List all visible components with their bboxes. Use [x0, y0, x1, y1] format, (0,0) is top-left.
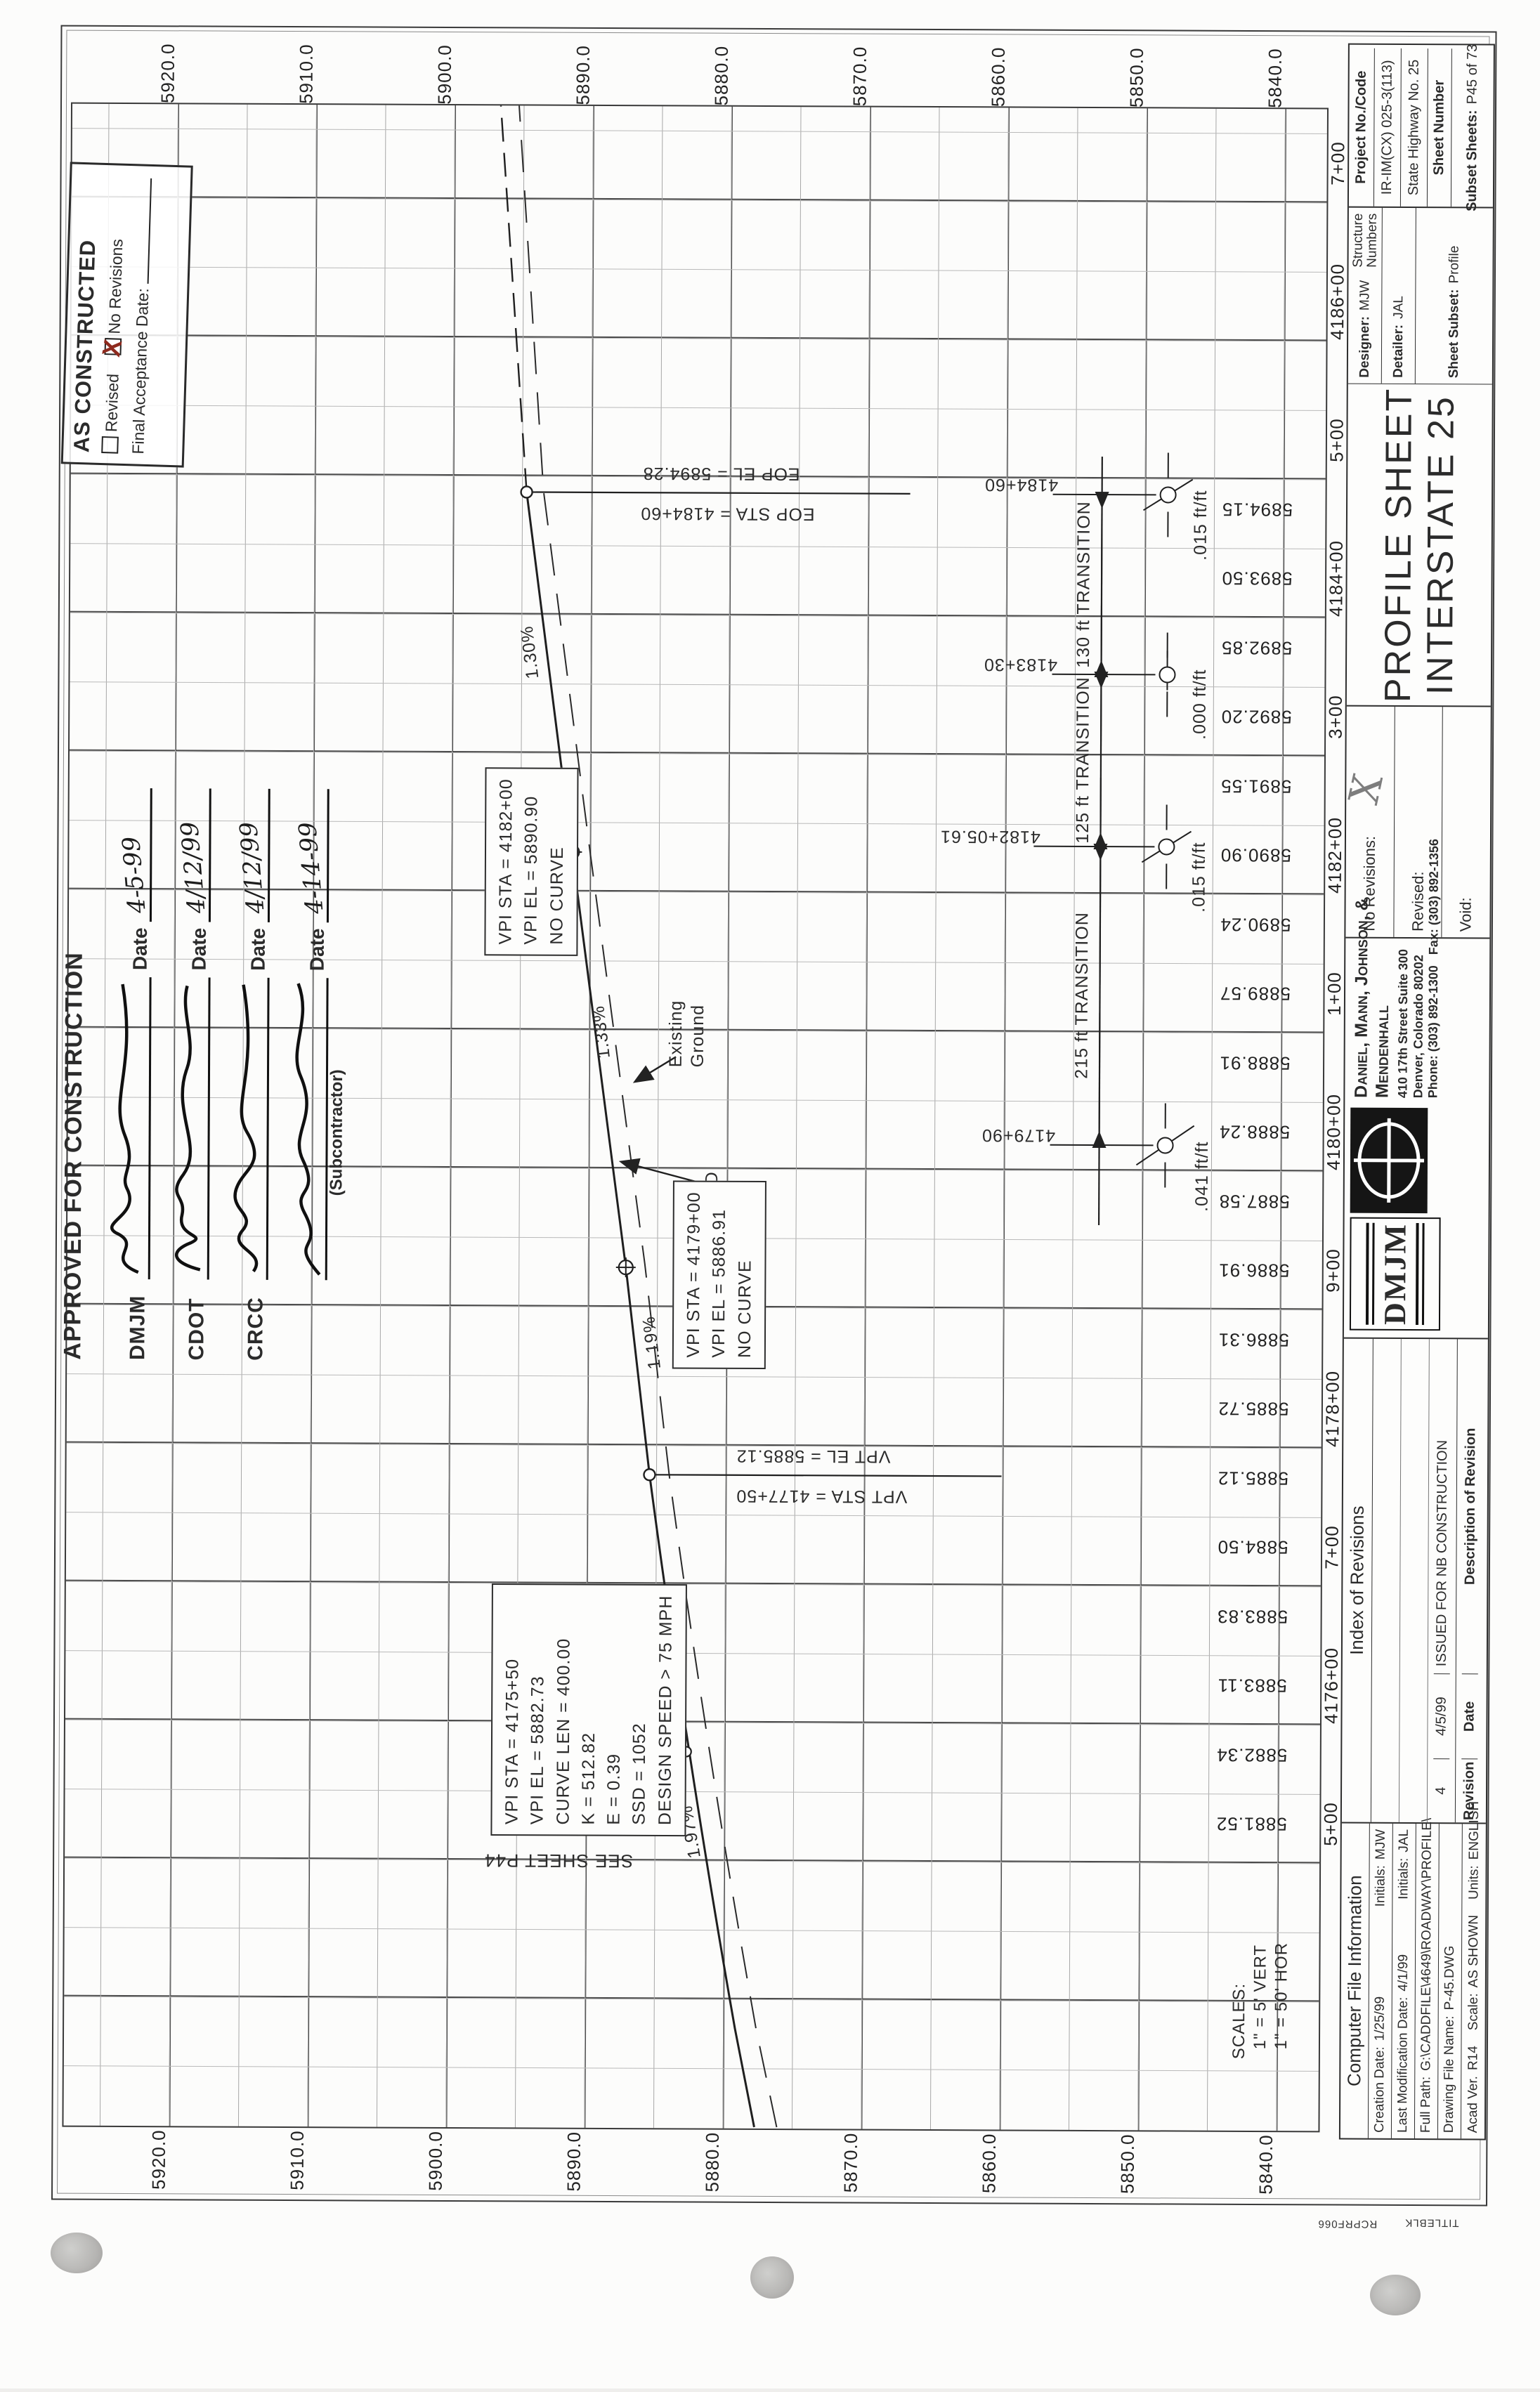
- structure-label-1: Structure: [1350, 214, 1365, 268]
- drawing-file-label: Drawing File Name:: [1442, 2015, 1458, 2133]
- eop-elevation-label: EOP EL = 5894.28: [643, 462, 800, 485]
- transition-sta-4184-60: 4184+60: [984, 473, 1058, 496]
- vpi-4179-curve: NO CURVE: [731, 1192, 757, 1358]
- no-revisions-label: No Revisions: [105, 239, 126, 334]
- sheet-title-section: PROFILE SHEET INTERSTATE 25 Designer: MJ…: [1347, 207, 1493, 706]
- ior-header-row: Revision Date Description of Revision: [1456, 1339, 1484, 1822]
- rate-015-b: .015 ft/ft: [1188, 842, 1211, 912]
- existing-ground-callout: Existing Ground: [665, 1000, 710, 1068]
- sheet-number-label: Sheet Number: [1428, 48, 1452, 207]
- last-mod-value: 4/1/99: [1396, 1954, 1411, 1992]
- structure-numbers-cell: Structure Numbers: [1351, 214, 1379, 268]
- subcontractor-signature-line: (Subcontractor): [280, 978, 329, 1280]
- company-phone: Phone: (303) 892-1300: [1426, 965, 1441, 1098]
- revised-option: Revised: [101, 374, 122, 454]
- vpi-4182-el: VPI EL = 5890.90: [518, 778, 544, 944]
- units-label: Units:: [1466, 1865, 1482, 1900]
- cdot-signature-line: [162, 977, 211, 1279]
- last-mod-label: Last Modification Date:: [1395, 1997, 1411, 2133]
- signature-row-crcc: CRCC Date 4/12/99: [209, 447, 272, 1361]
- date-line: 4-5-99: [115, 788, 152, 922]
- state-highway-value: State Highway No. 25: [1401, 48, 1428, 207]
- sheet-subset-label: Sheet Subset:: [1446, 289, 1462, 378]
- cdot-label: CDOT: [185, 1286, 209, 1360]
- date-word: Date: [129, 927, 152, 970]
- initials-label: Initials:: [1373, 1865, 1388, 1907]
- index-of-revisions: Index of Revisions 4 4/5/99 ISSUED FOR N…: [1342, 1338, 1488, 1823]
- mod-initials-value: JAL: [1397, 1829, 1412, 1852]
- no-revisions-option: X No Revisions: [104, 239, 126, 356]
- drawing-sheet: 5920.05910.05900.05890.05880.05870.05860…: [0, 0, 1540, 2392]
- date-line: 4-14-99: [292, 789, 329, 922]
- ior-empty-row: [1371, 1339, 1402, 1822]
- scale-value: AS SHOWN: [1466, 1915, 1481, 1988]
- see-sheet-note: SEE SHEET P44: [484, 1849, 633, 1872]
- curve-ssd: SSD = 1052: [627, 1595, 653, 1825]
- detailer-value: JAL: [1391, 296, 1407, 319]
- dmjm-globe-icon: [1350, 1108, 1428, 1213]
- signature-scribble: [221, 978, 268, 1280]
- handwritten-date: 4-5-99: [117, 835, 152, 914]
- final-acceptance-label: Final Acceptance Date:: [129, 288, 152, 455]
- revision-status-box: No Revisions: X Revised: Void:: [1345, 705, 1490, 938]
- logo-bars: [1366, 1223, 1375, 1325]
- scanned-profile-sheet-page: { "grid": { "elevation_labels": ["5920.0…: [0, 0, 1540, 2388]
- ior-revision-row: 4 4/5/99 ISSUED FOR NB CONSTRUCTION: [1428, 1339, 1458, 1822]
- revised-cell-label: Revised:: [1409, 871, 1427, 932]
- rate-041: .041 ft/ft: [1192, 1141, 1214, 1211]
- designer-label: Designer:: [1357, 316, 1372, 378]
- no-revisions-cell-label: No Revisions:: [1360, 836, 1379, 932]
- transition-sta-4182-05: 4182+05.61: [940, 825, 1040, 847]
- finished-grade-extension-dashed: [500, 105, 528, 492]
- scale-label: Scale:: [1466, 1993, 1481, 2030]
- void-cell-label: Void:: [1457, 897, 1475, 932]
- handwritten-date: 4/12/99: [176, 821, 211, 915]
- crcc-label: CRCC: [244, 1287, 268, 1361]
- revised-label: Revised: [102, 374, 122, 433]
- transition-span-125: 125 ft TRANSITION: [1072, 677, 1095, 844]
- ior-title: Index of Revisions: [1342, 1339, 1373, 1822]
- curve-len: CURVE LEN = 400.00: [550, 1595, 577, 1825]
- logo-bars: [1416, 1223, 1425, 1325]
- date-header: Date: [1461, 1673, 1478, 1758]
- signature-row-dmjm: DMJM Date 4-5-99: [91, 447, 154, 1360]
- full-path-value: G:\CADDFILE\4649\ROADWAY\PROFILE\: [1418, 1818, 1435, 2071]
- project-code-value: IR-IM(CX) 025-3(113): [1374, 48, 1402, 207]
- signature-scribble: [103, 977, 150, 1279]
- vpi-4182-box: VPI STA = 4182+00 VPI EL = 5890.90 NO CU…: [484, 767, 578, 956]
- date-line: 4/12/99: [174, 789, 211, 922]
- date-word: Date: [188, 928, 211, 971]
- revision-header: Revision: [1461, 1758, 1477, 1822]
- as-constructed-title: AS CONSTRUCTED: [69, 174, 103, 453]
- signature-row-subcontractor: (Subcontractor) Date 4-14-99: [268, 447, 331, 1361]
- revision-description: ISSUED FOR NB CONSTRUCTION: [1434, 1339, 1451, 1673]
- subset-sheets-value: P45 of 73: [1465, 44, 1481, 105]
- subset-sheets-label: Subset Sheets:: [1464, 110, 1481, 211]
- sheet-subset-value: Profile: [1447, 246, 1462, 284]
- description-header: Description of Revision: [1461, 1339, 1479, 1673]
- punch-hole: [750, 2256, 794, 2299]
- signature-scribble: [162, 977, 209, 1279]
- acad-ver-label: Acad Ver.: [1465, 2076, 1480, 2133]
- vpi-4179-el: VPI EL = 5886.91: [706, 1192, 732, 1358]
- superelevation-diagram: [1032, 452, 1197, 1226]
- corner-text-titleblk: TITLEBLK: [1404, 2216, 1459, 2228]
- dmjm-logo: DMJM: [1350, 1108, 1441, 1331]
- scales-horizontal: 1" = 50' HOR: [1271, 1942, 1293, 2060]
- curve-design-speed: DESIGN SPEED > 75 MPH: [652, 1595, 679, 1826]
- creation-initials-value: MJW: [1373, 1829, 1389, 1860]
- vpi-4182-sta: VPI STA = 4182+00: [492, 778, 518, 944]
- existing-ground-line1: Existing: [665, 1000, 688, 1068]
- computer-file-information: Computer File Information Creation Date:…: [1340, 1822, 1486, 2139]
- signature-scribble: [280, 978, 327, 1280]
- handwritten-date: 4-14-99: [294, 821, 329, 915]
- curve-el: VPI EL = 5882.73: [525, 1595, 552, 1825]
- sheet-title-line1: PROFILE SHEET: [1376, 387, 1420, 703]
- corner-text-rcprf066: RCPRF066: [1317, 2218, 1377, 2230]
- curve-k: K = 512.82: [575, 1595, 602, 1825]
- no-revisions-checkbox: X: [104, 339, 122, 356]
- subcontractor-label: (Subcontractor): [327, 1069, 347, 1196]
- curve-sta: VPI STA = 4175+50: [499, 1595, 526, 1825]
- revision-number: 4: [1433, 1758, 1449, 1822]
- rate-015-a: .015 ft/ft: [1190, 490, 1213, 560]
- creation-date-value: 1/25/99: [1373, 1996, 1388, 2041]
- transition-span-130: 130 ft TRANSITION: [1073, 501, 1095, 668]
- subset-sheets-cell: Subset Sheets: P45 of 73: [1451, 48, 1494, 207]
- date-line: 4/12/99: [233, 789, 270, 922]
- handwritten-date: 4/12/99: [235, 821, 270, 915]
- revision-date: 4/5/99: [1433, 1673, 1450, 1758]
- date-word: Date: [306, 928, 329, 971]
- handwritten-x-mark: X: [1340, 770, 1392, 809]
- ior-empty-row: [1399, 1339, 1430, 1822]
- acad-ver-value: R14: [1466, 2046, 1481, 2070]
- punch-hole: [51, 2233, 103, 2273]
- red-x-mark: X: [96, 337, 128, 359]
- creation-date-label: Creation Date:: [1372, 2046, 1388, 2133]
- vpt-elevation-label: VPT EL = 5885.12: [736, 1444, 891, 1467]
- eop-station-label: EOP STA = 4184+60: [640, 502, 814, 525]
- scales-vertical: 1" = 5' VERT: [1250, 1942, 1272, 2060]
- title-block: Computer File Information Creation Date:…: [1339, 44, 1495, 2141]
- as-constructed-stamp: AS CONSTRUCTED Revised X No Revisions Fi…: [61, 162, 193, 467]
- structure-label-2: Numbers: [1364, 214, 1379, 268]
- transition-sta-4179-90: 4179+90: [981, 1124, 1055, 1146]
- vpi-4182-curve: NO CURVE: [544, 779, 570, 945]
- sheet-title-line2: INTERSTATE 25: [1418, 395, 1462, 695]
- vpt-station-label: VPT STA = 4177+50: [736, 1484, 907, 1507]
- vpi-4179-sta: VPI STA = 4179+00: [681, 1191, 707, 1357]
- crcc-signature-line: [221, 978, 270, 1280]
- approved-for-construction-block: APPROVED FOR CONSTRUCTION DMJM Date 4-5-…: [59, 447, 344, 1361]
- eop-point: [521, 486, 533, 497]
- designer-value: MJW: [1357, 280, 1373, 311]
- final-acceptance-blank: [136, 178, 152, 284]
- project-code-label: Project No./Code: [1349, 48, 1375, 207]
- drawing-file-value: P-45.DWG: [1442, 1946, 1458, 2011]
- punch-hole: [1370, 2275, 1421, 2315]
- rate-000: .000 ft/ft: [1189, 669, 1211, 739]
- transition-span-215: 215 ft TRANSITION: [1071, 912, 1093, 1079]
- vpt-leader: [656, 1475, 1002, 1476]
- dmjm-block: DMJM Daniel, Mann, Johnson, & Mendenhall…: [1344, 937, 1489, 1338]
- vertical-curve-data-box: VPI STA = 4175+50 VPI EL = 5882.73 CURVE…: [490, 1583, 686, 1837]
- existing-ground-line2: Ground: [687, 1000, 710, 1068]
- scales-note: SCALES: 1" = 5' VERT 1" = 50' HOR: [1229, 1942, 1293, 2060]
- approved-title: APPROVED FOR CONSTRUCTION: [59, 447, 91, 1360]
- full-path-label: Full Path:: [1418, 2077, 1434, 2133]
- dmjm-label: DMJM: [126, 1286, 150, 1360]
- detailer-label: Detailer:: [1390, 325, 1406, 378]
- curve-e: E = 0.39: [601, 1595, 627, 1825]
- eop-leader: [533, 492, 911, 494]
- dmjm-logo-text: DMJM: [1377, 1223, 1414, 1325]
- vpi-marker-4179: [616, 1257, 636, 1277]
- initials-label: Initials:: [1396, 1858, 1411, 1900]
- date-word: Date: [247, 928, 270, 971]
- signature-row-cdot: CDOT Date 4/12/99: [150, 447, 213, 1360]
- project-info-section: Project No./Code IR-IM(CX) 025-3(113) St…: [1349, 48, 1494, 207]
- scales-title: SCALES:: [1229, 1942, 1251, 2060]
- cfi-title: Computer File Information: [1340, 1824, 1370, 2138]
- vpt-point: [644, 1469, 655, 1480]
- transition-sta-4183-30: 4183+30: [984, 653, 1057, 676]
- dmjm-signature-line: [103, 977, 152, 1279]
- vpi-4179-box: VPI STA = 4179+00 VPI EL = 5886.91 NO CU…: [672, 1180, 766, 1369]
